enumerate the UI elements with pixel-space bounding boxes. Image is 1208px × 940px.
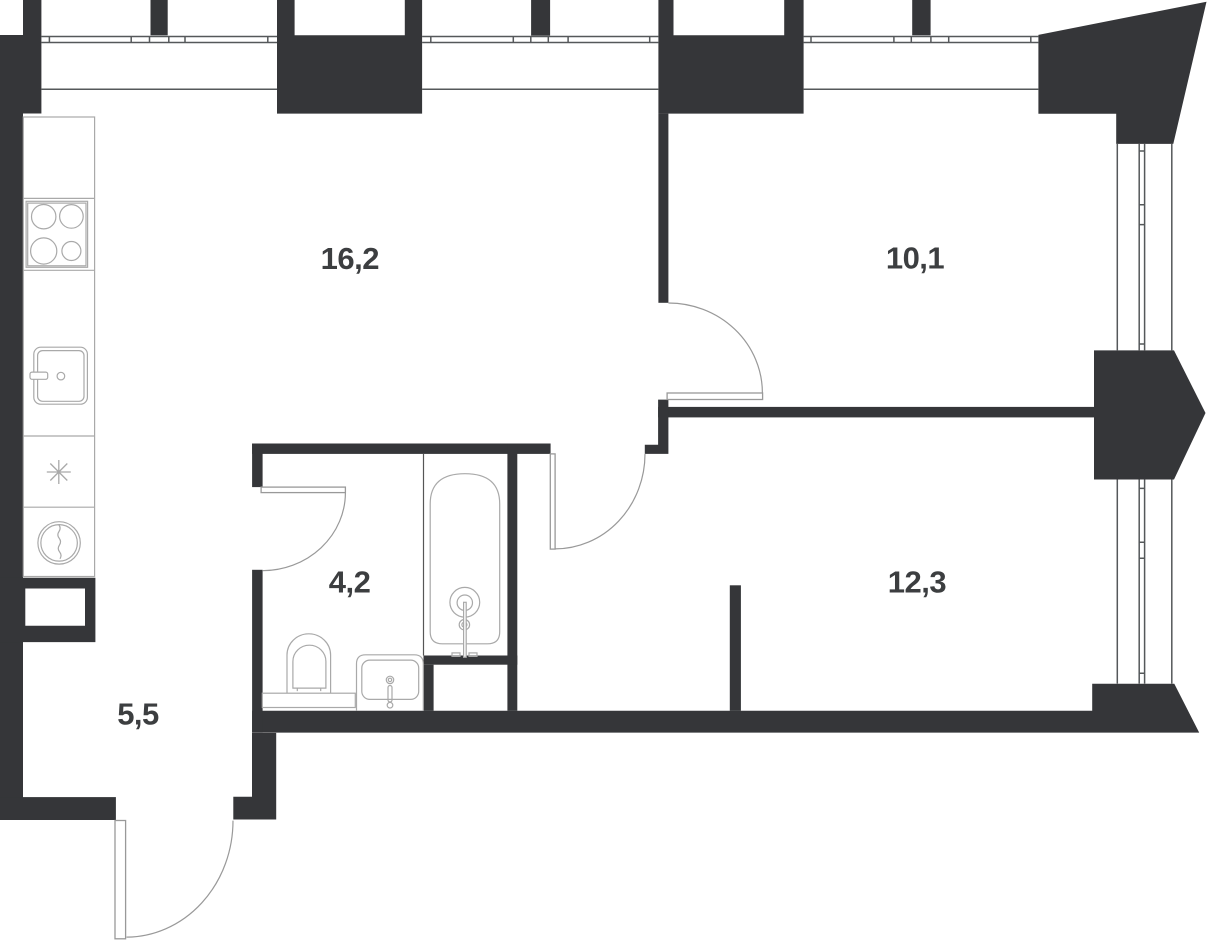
svg-text:12,3: 12,3 [888,565,947,600]
svg-text:4,2: 4,2 [329,565,371,600]
svg-text:10,1: 10,1 [886,241,945,276]
svg-text:16,2: 16,2 [321,241,379,276]
svg-text:5,5: 5,5 [117,696,159,731]
